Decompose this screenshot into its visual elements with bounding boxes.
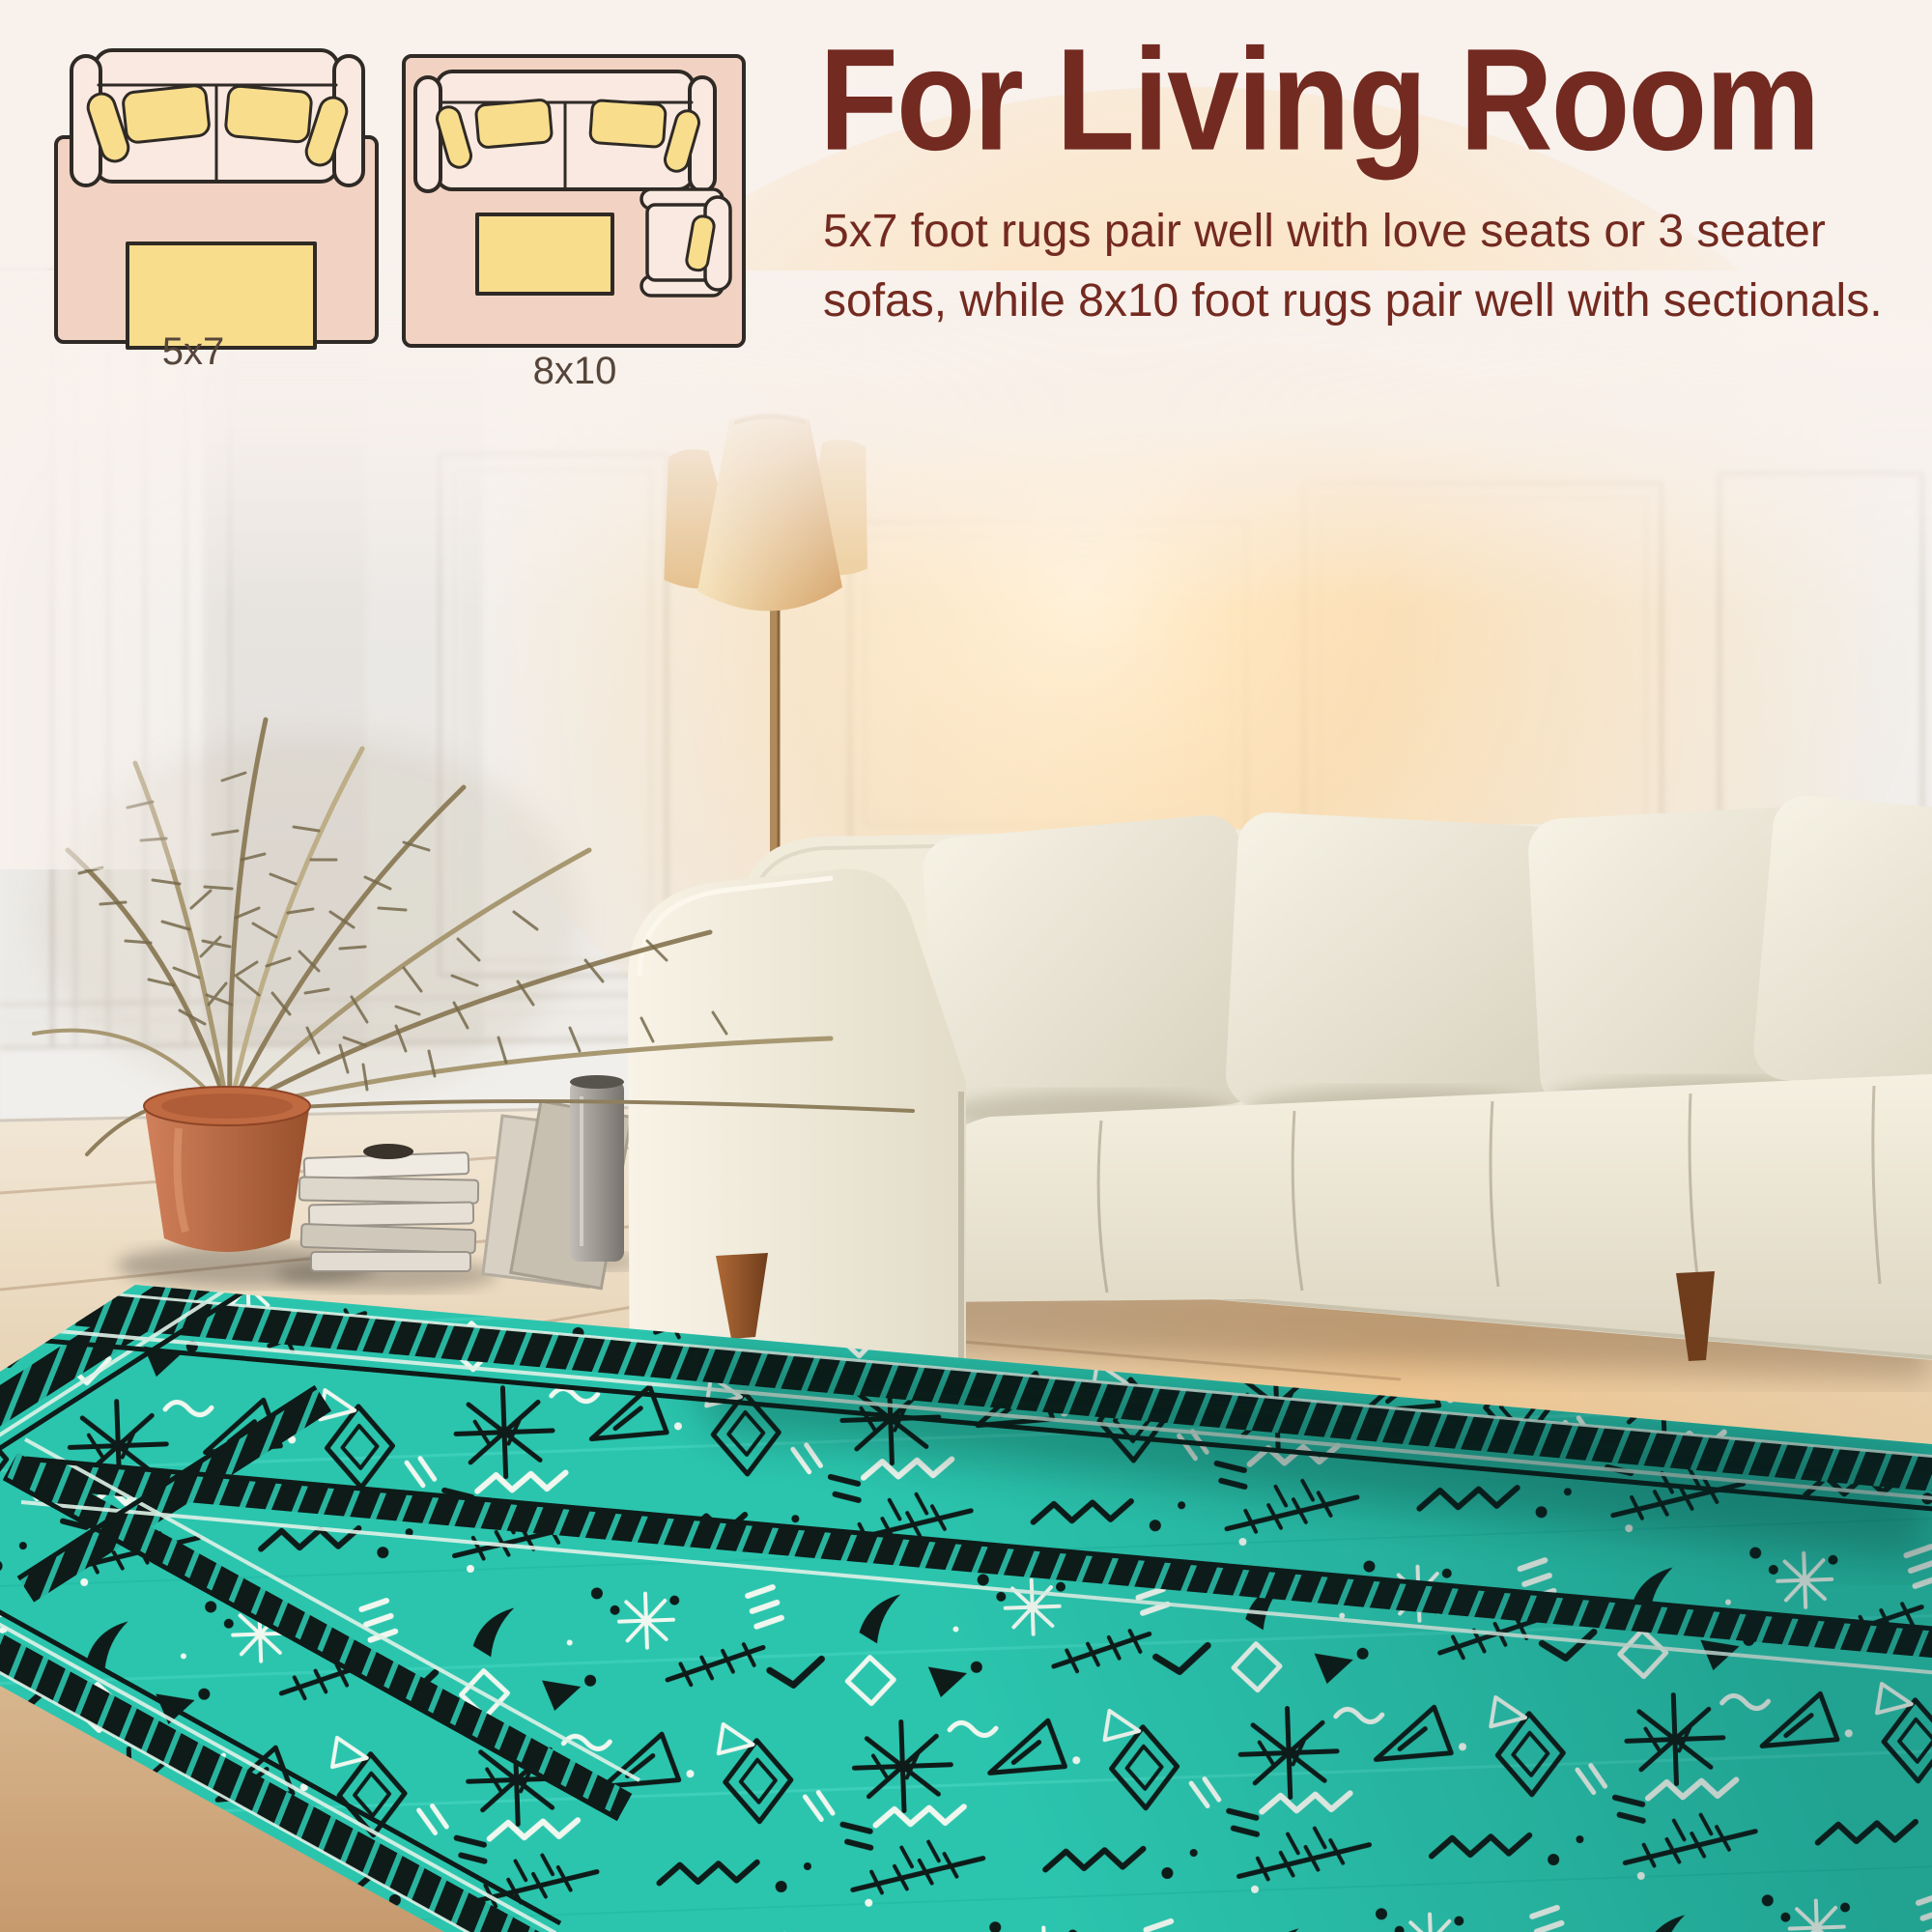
page-title: For Living Room (819, 17, 1930, 183)
size-label-5x7: 5x7 (126, 330, 261, 374)
book-stack (299, 1144, 478, 1271)
rug-product-infographic: 5x7 8x10 For Living Room 5x7 foot rugs p… (0, 0, 1932, 1932)
size-diagram-5x7 (56, 50, 377, 348)
diagram-coffee-table (477, 214, 612, 294)
terracotta-pot (144, 1087, 310, 1252)
diagram-armchair (641, 189, 730, 296)
description-text: 5x7 foot rugs pair well with love seats … (823, 197, 1932, 336)
description-line-2: sofas, while 8x10 foot rugs pair well wi… (823, 275, 1883, 327)
rug-size-guide (0, 0, 773, 386)
size-diagram-8x10 (404, 56, 744, 346)
size-label-8x10: 8x10 (493, 350, 657, 393)
description-line-1: 5x7 foot rugs pair well with love seats … (823, 206, 1826, 257)
